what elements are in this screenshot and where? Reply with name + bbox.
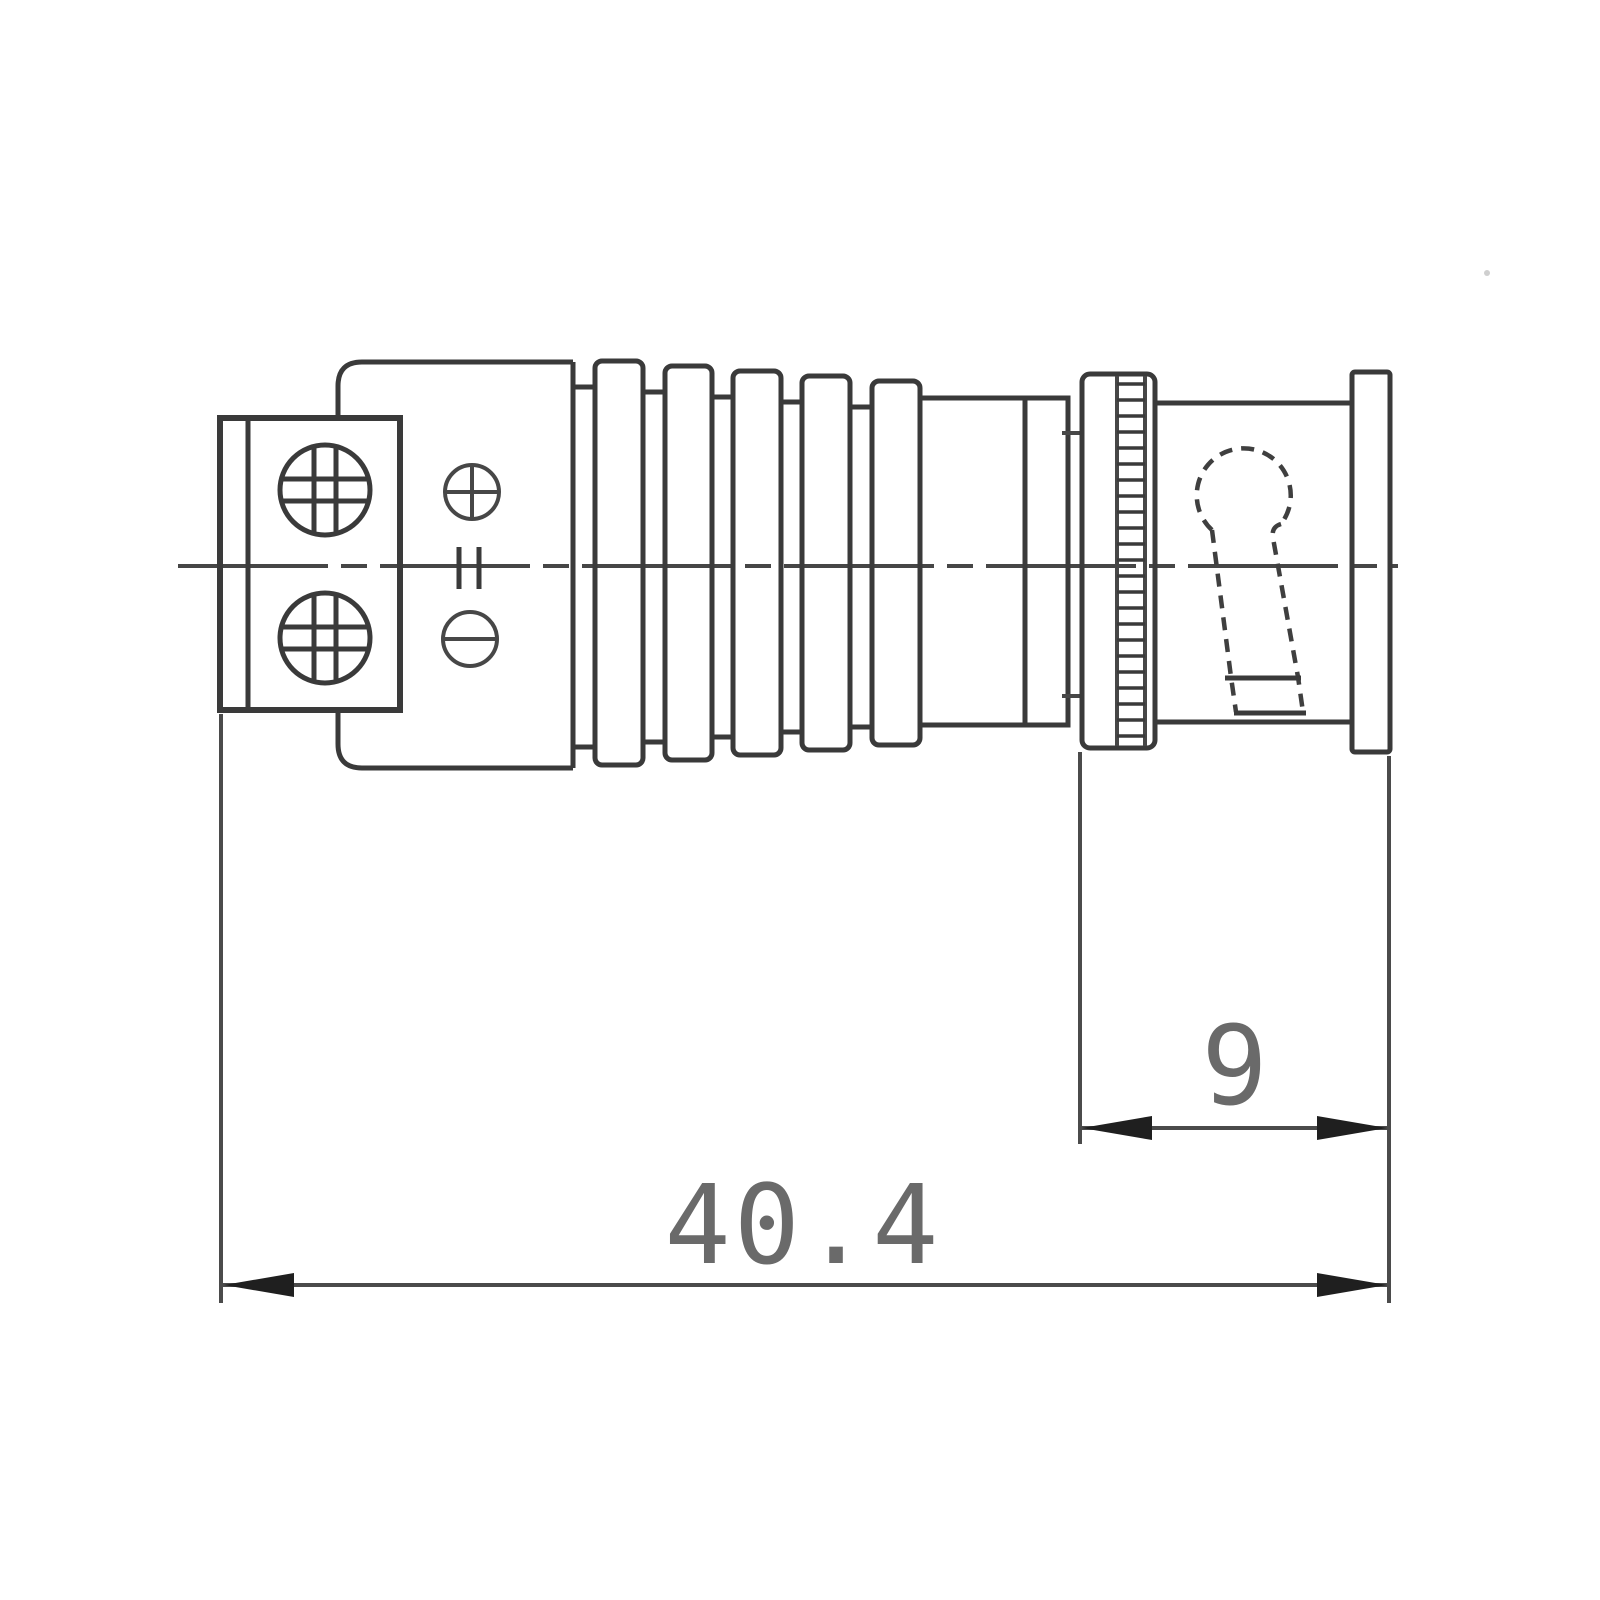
phillips-screw-bottom-icon	[280, 593, 370, 683]
arrow-right-icon	[1317, 1273, 1387, 1297]
arrow-right-icon	[1317, 1116, 1387, 1140]
mounting-flange	[1352, 372, 1390, 752]
dimension-front-section: 9	[1080, 1002, 1389, 1140]
scan-artifact-dot	[1484, 270, 1490, 276]
negative-polarity-icon	[443, 612, 497, 666]
arrow-left-icon	[1082, 1116, 1152, 1140]
positive-polarity-icon	[445, 465, 499, 519]
rear-cylinder	[920, 398, 1082, 725]
dimension-overall-length: 40.4	[222, 1161, 1389, 1297]
rib-3	[733, 371, 781, 755]
arrow-left-icon	[224, 1273, 294, 1297]
rib-5	[872, 381, 920, 745]
rib-4	[802, 376, 850, 750]
rib-2	[665, 366, 712, 760]
technical-drawing: 9 40.4	[0, 0, 1600, 1600]
knurl-hatch	[1117, 378, 1145, 744]
strain-relief-ribs	[573, 361, 920, 765]
dimension-text-overall: 40.4	[665, 1161, 942, 1289]
bayonet-slot	[1197, 448, 1306, 713]
rib-1	[595, 361, 643, 765]
phillips-screw-top-icon	[280, 445, 370, 535]
dimension-text-front: 9	[1201, 1002, 1270, 1130]
knurled-coupling-ring	[1082, 374, 1155, 748]
